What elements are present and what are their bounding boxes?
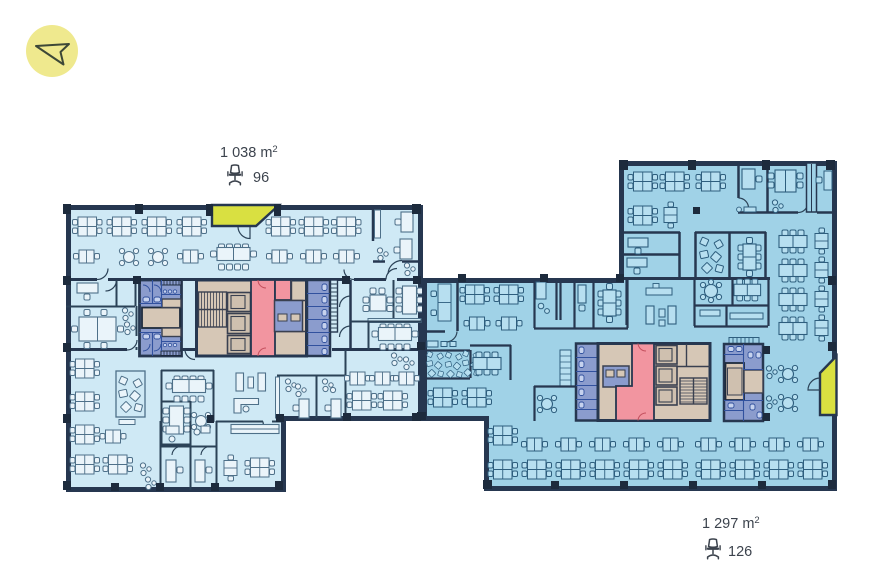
svg-text:1 297 m2: 1 297 m2 (702, 515, 760, 532)
svg-text:126: 126 (728, 544, 752, 560)
svg-text:1 038 m2: 1 038 m2 (220, 144, 278, 161)
svg-text:96: 96 (253, 170, 269, 186)
